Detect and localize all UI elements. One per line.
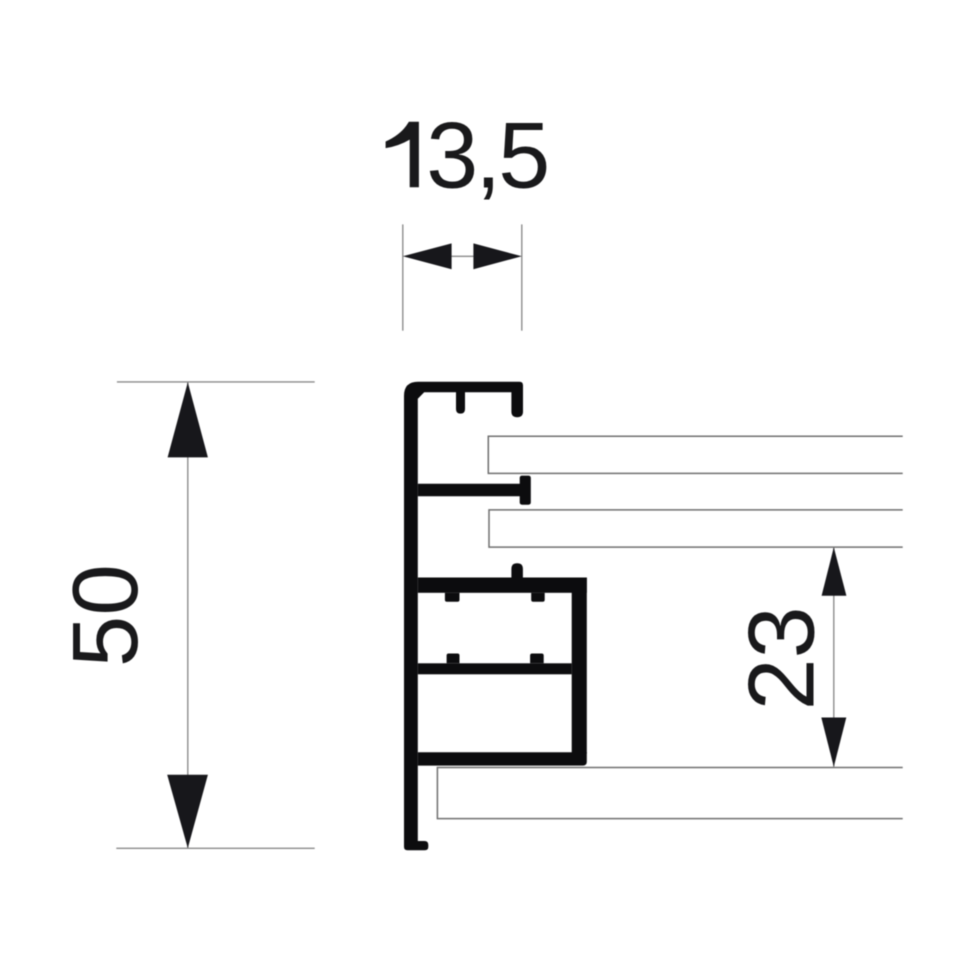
svg-text:50: 50: [53, 564, 157, 667]
svg-text:23: 23: [728, 606, 833, 710]
svg-text:3,5: 3,5: [426, 102, 547, 207]
